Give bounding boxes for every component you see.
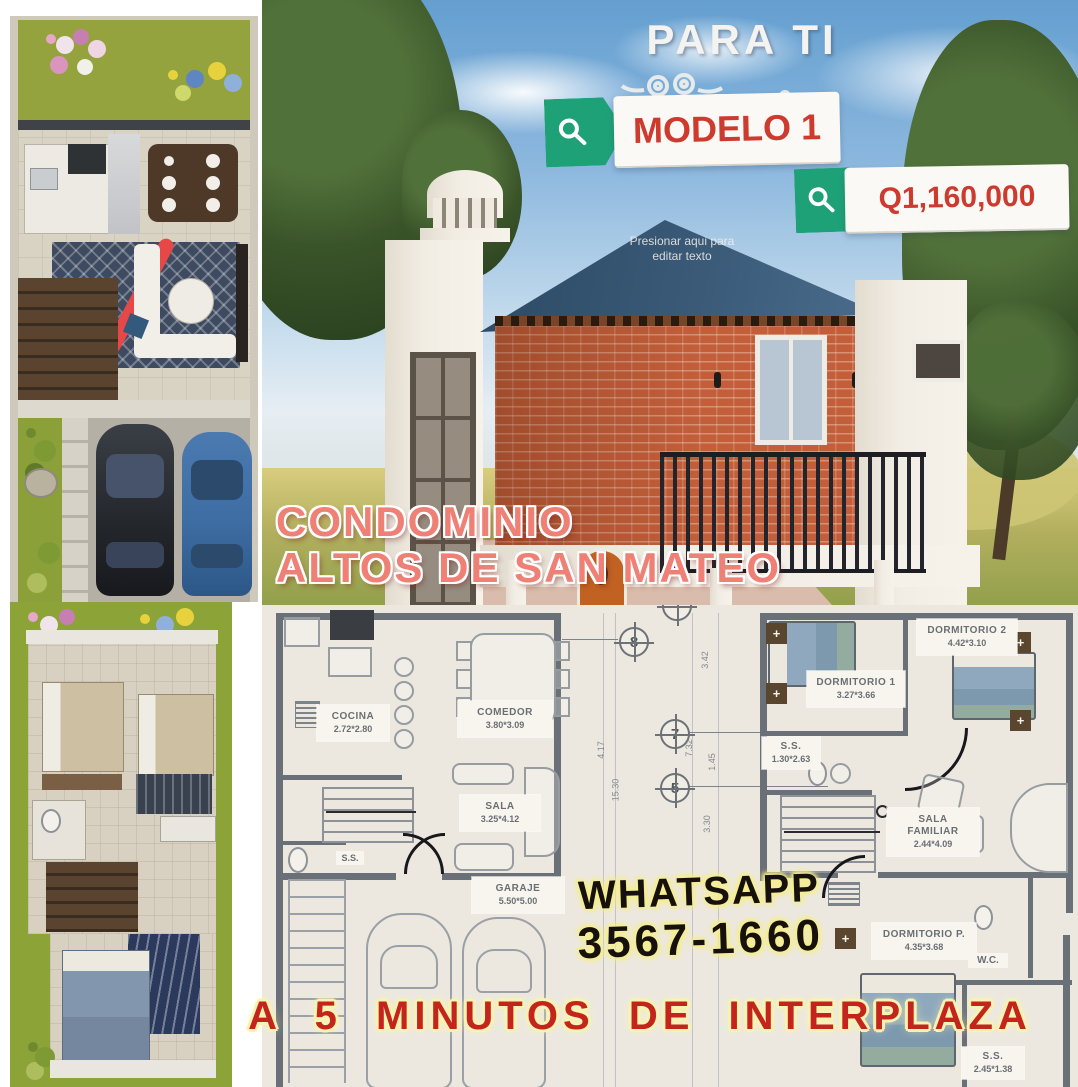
toilet [974,905,993,930]
room-label-sala-familiar: SALA FAMILIAR 2.44*4.09 [887,808,979,856]
room-dims: 3.80*3.09 [486,719,525,731]
sofa [452,763,514,785]
car-windshield [476,949,532,993]
room-name: DORMITORIO 1 [816,677,895,689]
room-label-dormitorio-p: DORMITORIO P. 4.35*3.68 [872,923,976,959]
walkway [62,418,88,602]
room-dims: 1.30*2.63 [772,753,811,765]
condo-name-line2: ALTOS DE SAN MATEO [276,544,781,592]
dimension-label: 4.17 [596,741,606,759]
car-dark [96,424,174,596]
cupola-lantern [433,198,497,230]
upper-window [755,335,827,445]
curved-sofa [1010,783,1068,873]
room-dims: 5.50*5.00 [499,895,538,907]
whatsapp-number: 3567-1660 [550,910,852,970]
wall [878,872,1072,878]
dimension-label: 3.30 [702,815,712,833]
room-name: DORMITORIO P. [883,929,965,941]
room-label-cocina: COCINA 2.72*2.80 [317,705,389,741]
flower-cluster [46,34,56,44]
wall [276,775,402,780]
nightstand: + [766,623,787,644]
mid-band [18,400,250,418]
bed-tan [42,682,124,772]
dining-table [148,144,238,222]
grid-marker-8: 8 [619,627,649,657]
dining-chair [554,641,570,661]
dark-rug [136,774,212,814]
dimension-label: 1.45 [707,753,717,771]
room-dims: 3.27*3.66 [837,689,876,701]
model-tag-label: MODELO 1 [633,106,822,152]
tree-right-low [952,300,1078,480]
wall [760,731,908,736]
toilet [41,809,61,833]
bath-sink [830,763,851,784]
dresser [42,774,122,790]
garden-top [18,20,250,124]
wall [760,613,1072,620]
tv-console [236,244,248,362]
fridge [284,617,320,647]
room-dims: 4.35*3.68 [905,941,944,953]
search-icon [554,115,589,150]
render-upper-floor-3d [10,602,232,1087]
dimension-leader [562,639,618,640]
grid-marker-top [662,605,692,621]
dining-chair [554,697,570,717]
render-ground-floor-3d [10,16,258,602]
wall-band [26,630,218,644]
sink [30,168,58,190]
stairs-arrow [326,811,416,813]
side-table [168,278,214,324]
wall [1028,878,1033,978]
wall [952,980,1072,985]
nightstand: + [766,683,787,704]
room-label-ss-upper: S.S. 1.30*2.63 [762,737,820,769]
dining-chair [456,641,472,661]
dimension-label: 15.30 [610,779,620,802]
kitchen-sink [328,647,372,677]
plates [164,156,174,166]
room-name: S.S. [781,741,802,753]
stairs-dark [46,862,138,932]
room-name: COMEDOR [477,707,533,719]
flyer: PARA TI MODELO 1 Q1, [0,0,1078,1087]
bed-tan [138,694,214,776]
exterior-stair-ladder [288,879,346,1083]
room-name: COCINA [332,711,374,723]
room-name: DORMITORIO 2 [927,625,1006,637]
room-label-dormitorio-2: DORMITORIO 2 4.42*3.10 [917,619,1017,655]
edit-hint-line2: editar texto [596,249,768,264]
right-wing-window [912,340,964,382]
armchair [454,843,514,871]
flower-cluster [28,612,38,622]
room-label-ss-ground: S.S. [336,851,364,865]
desk [160,816,216,842]
wall-lamp [714,372,721,388]
bar-stool [394,657,414,677]
grid-marker-5: 5 [660,773,690,803]
flower-cluster [140,614,150,624]
car-blue-rear [191,544,243,568]
room-name: SALA FAMILIAR [903,814,963,838]
room-name: GARAJE [496,883,541,895]
house-photo: PARA TI MODELO 1 Q1, [262,0,1078,605]
room-name: S.S. [983,1051,1004,1063]
stairs-dark [18,278,118,400]
bar-stool [394,705,414,725]
toilet [288,847,308,873]
headline: PARA TI [602,16,882,64]
room-label-dormitorio-1: DORMITORIO 1 3.27*3.66 [807,671,905,707]
model-tag: MODELO 1 [613,92,840,169]
room-name: SALA [485,801,514,813]
stairs-arrow [784,831,880,833]
condo-name-line1: CONDOMINIO [276,498,574,546]
room-dims: 4.42*3.10 [948,637,987,649]
room-label-wc: W.C. [968,953,1008,968]
room-dims: 2.72*2.80 [334,723,373,735]
price-tag: Q1,160,000 [844,164,1069,234]
room-label-comedor: COMEDOR 3.80*3.09 [458,701,552,737]
plants [28,1042,38,1052]
stone-circle [24,468,58,498]
car-blue [182,432,252,596]
price-tag-label: Q1,160,000 [878,180,1035,217]
nightstand: + [1010,710,1031,731]
room-dims: 2.45*1.38 [974,1063,1013,1075]
car-dark-rear [106,542,164,568]
room-label-sala: SALA 3.25*4.12 [460,795,540,831]
stove [68,144,106,174]
car-windshield [380,945,438,989]
dimension-label: 7.32 [684,739,694,757]
edit-hint: Presionar aqui para editar texto [596,234,768,264]
marble-column [108,134,140,234]
bottom-banner: A 5 MINUTOS DE INTERPLAZA [222,994,1058,1039]
search-icon [804,184,837,217]
room-dims: 3.25*4.12 [481,813,520,825]
dining-chair [456,669,472,689]
car-dark-glass [106,454,164,498]
sofa [134,334,236,358]
bathroom [32,800,86,860]
car-blue-glass [191,460,243,500]
wall [1063,935,1070,1087]
bush [26,428,36,438]
room-label-ss-2: S.S. 2.45*1.38 [962,1047,1024,1079]
flower-cluster [168,70,178,80]
dimension-label: 3.42 [700,651,710,669]
bar-stool [394,729,414,749]
dimension-leader [688,786,828,787]
side-garden [18,418,62,602]
room-dims: 2.44*4.09 [914,838,953,850]
bed-blue [62,950,150,1062]
stove [330,610,374,640]
stairs [322,787,414,843]
whatsapp-contact: WHATSAPP 3567-1660 [548,865,851,970]
bar-stool [394,681,414,701]
porch-column [874,560,894,605]
eave-corbels [495,316,867,326]
dining-chair [554,669,570,689]
wall-band [18,120,250,130]
bottom-band [50,1060,216,1078]
edit-hint-line1: Presionar aqui para [596,234,768,249]
